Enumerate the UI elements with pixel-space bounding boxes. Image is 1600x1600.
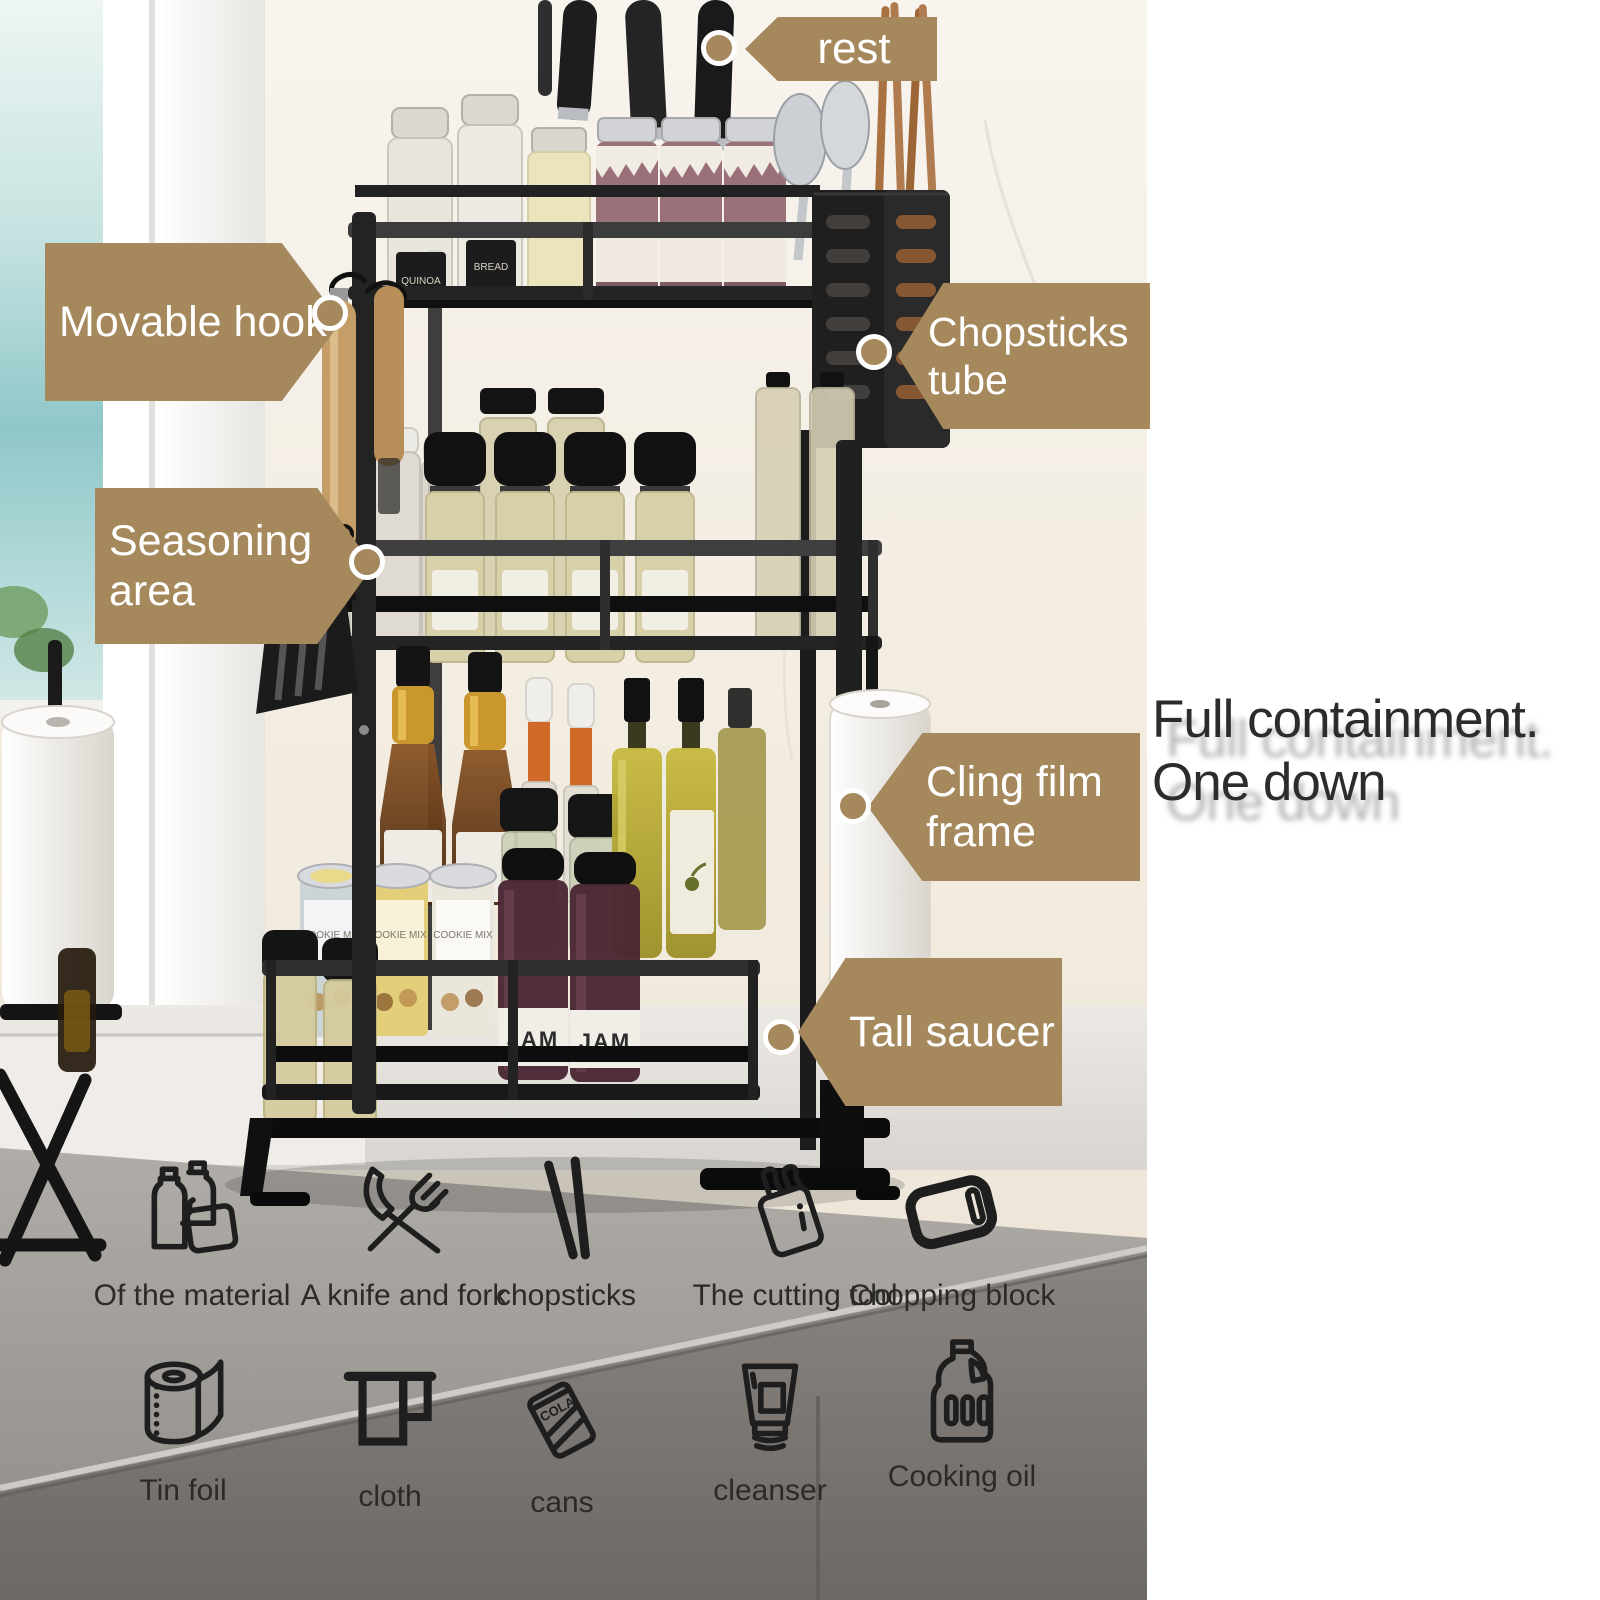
feature-cooking-oil: Cooking oil [842,1336,1082,1494]
callout-rest: rest [745,17,937,81]
callout-seasoning-area-marker-dot [349,544,385,580]
feature-cans: COLA cans [442,1362,682,1520]
feature-label: chopsticks [496,1279,636,1313]
callout-movable-hook-label: Movable hook [59,297,341,347]
svg-text:BREAD: BREAD [474,262,508,273]
callout-movable-hook-marker-dot [312,295,348,331]
headline-line2: One down [1152,751,1539,814]
feature-label: Chopping block [849,1279,1056,1313]
svg-text:COOKIE MIX: COOKIE MIX [433,930,493,941]
feature-of-the-material: Of the material [72,1155,312,1313]
headline: Full containment. One down [1152,688,1539,814]
paper-roll-icon [127,1350,239,1462]
callout-cling-film-frame-marker-dot [835,788,871,824]
product-infographic: QUINOA BREAD [0,0,1600,1600]
chopsticks-icon [510,1155,622,1267]
callout-seasoning-area-label: Seasoning area [109,516,373,616]
callout-chopsticks-tube-label: Chopsticks tube [928,308,1150,404]
callout-chopsticks-tube: Chopsticks tube [898,283,1150,429]
feature-chopsticks: chopsticks [446,1155,686,1313]
callout-rest-marker-dot [701,30,737,66]
feature-label: Of the material [94,1279,291,1313]
headline-line1: Full containment. [1152,688,1539,751]
svg-text:COOKIE MIX: COOKIE MIX [367,930,427,941]
svg-text:QUINOA: QUINOA [401,276,441,287]
callout-movable-hook: Movable hook [45,243,341,401]
callout-cling-film-frame: Cling film frame [868,733,1140,881]
callout-cling-film-frame-label: Cling film frame [926,757,1140,857]
feature-label: Cooking oil [888,1460,1036,1494]
knife-fork-icon [348,1155,460,1267]
can-icon: COLA [506,1362,618,1474]
cloth-icon [334,1356,446,1468]
callout-tall-saucer-label: Tall saucer [842,1007,1062,1057]
chopping-block-icon [896,1155,1008,1267]
feature-label: cans [530,1486,593,1520]
bottles-icon [136,1155,248,1267]
feature-label: cloth [358,1480,421,1514]
feature-label: cleanser [713,1474,826,1508]
feature-label: Tin foil [139,1474,226,1508]
oil-jug-icon [906,1336,1018,1448]
feature-chopping-block: Chopping block [832,1155,1072,1313]
callout-tall-saucer: Tall saucer [798,958,1062,1106]
cleanser-icon [714,1350,826,1462]
callout-chopsticks-tube-marker-dot [856,334,892,370]
callout-seasoning-area: Seasoning area [95,488,373,644]
callout-tall-saucer-marker-dot [763,1019,799,1055]
feature-tin-foil: Tin foil [63,1350,303,1508]
callout-rest-label: rest [771,24,937,74]
